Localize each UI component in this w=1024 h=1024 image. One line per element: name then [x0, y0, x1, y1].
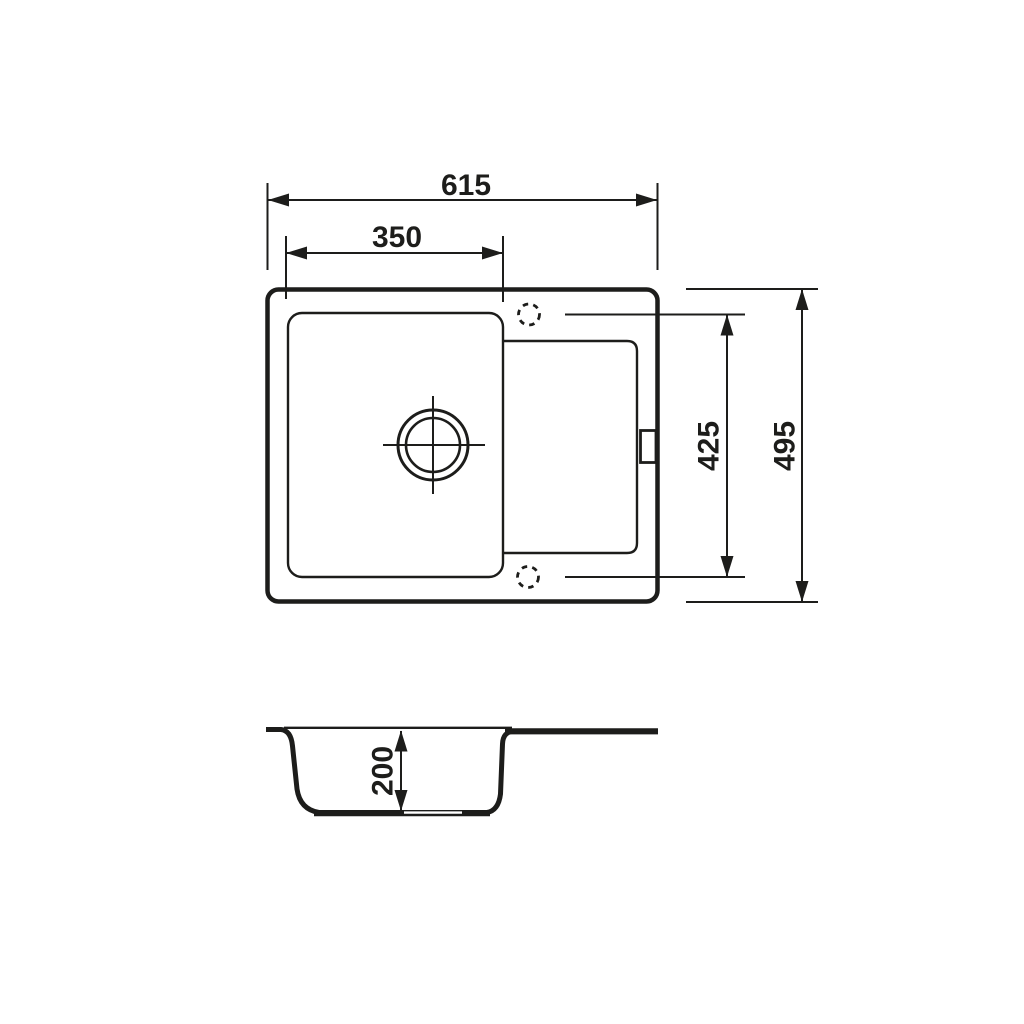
dim-350-arrow-left [286, 247, 307, 260]
drawing-canvas: 615 350 425 495 [0, 0, 1024, 1024]
dim-350-label: 350 [372, 221, 422, 254]
dim-overall-width: 615 [268, 169, 658, 270]
overflow-slot [641, 431, 657, 463]
dim-425-arrow-top [721, 315, 734, 336]
dim-495-arrow-top [796, 289, 809, 310]
dim-425-arrow-bottom [721, 556, 734, 577]
dim-495-label: 495 [769, 421, 802, 471]
section-view [266, 728, 658, 813]
tap-hole-bottom [518, 567, 539, 588]
dim-350-arrow-right [482, 247, 503, 260]
dim-200-label: 200 [367, 746, 400, 796]
tap-hole-top [519, 304, 540, 325]
dim-bowl-depth: 200 [367, 731, 408, 812]
dim-425-label: 425 [693, 421, 726, 471]
dim-495-arrow-bottom [796, 581, 809, 602]
drain-symbol [383, 396, 485, 494]
dim-615-label: 615 [441, 169, 491, 202]
dim-615-arrow-right [636, 194, 657, 207]
top-view [268, 290, 658, 602]
drainer-outline [503, 341, 637, 553]
sink-technical-drawing: 615 350 425 495 [0, 0, 1024, 1024]
dim-615-arrow-left [268, 194, 289, 207]
